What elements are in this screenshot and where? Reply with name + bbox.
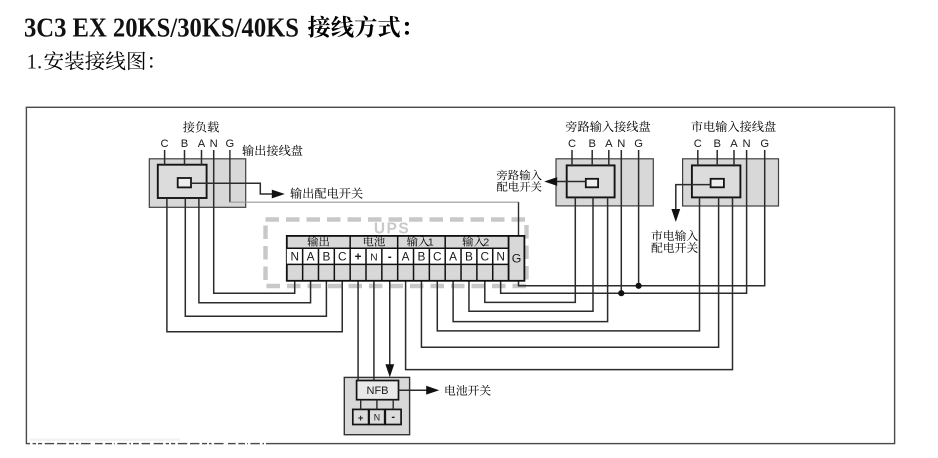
svg-text:C: C [568,138,576,150]
svg-text:N: N [496,250,505,264]
svg-text:A: A [730,138,738,150]
svg-text:N: N [743,138,751,150]
svg-text:A: A [307,250,315,264]
svg-text:G: G [512,252,522,266]
svg-text:UPS: UPS [374,221,410,238]
svg-text:B: B [181,138,188,150]
svg-text:-: - [388,250,392,264]
svg-text:A: A [605,138,613,150]
svg-text:B: B [465,250,473,264]
svg-text:A: A [402,250,410,264]
svg-text:B: B [418,250,426,264]
svg-text:N: N [290,250,299,264]
svg-text:C: C [481,250,490,264]
svg-text:B: B [588,138,595,150]
svg-text:2: 2 [483,237,489,249]
svg-text:1.: 1. [27,50,43,74]
svg-text:NFB: NFB [367,385,389,397]
svg-text:C: C [433,250,442,264]
svg-text:N: N [374,413,380,423]
svg-text:G: G [634,138,643,150]
svg-text:+: + [358,413,364,424]
svg-text:-: - [391,411,395,423]
svg-text:G: G [226,138,235,150]
svg-text:N: N [210,138,218,150]
svg-text:A: A [449,250,457,264]
svg-text:C: C [694,138,702,150]
svg-text:N: N [617,138,625,150]
svg-text:B: B [322,250,330,264]
svg-text:C: C [161,138,169,150]
svg-text:1: 1 [428,237,434,249]
svg-text:+: + [355,250,362,264]
svg-text:B: B [713,138,720,150]
svg-text:C: C [338,250,347,264]
svg-text:3C3 EX 20KS/30KS/40KS: 3C3 EX 20KS/30KS/40KS [24,12,299,43]
svg-text:G: G [760,138,769,150]
svg-text:N: N [370,253,377,264]
svg-text:A: A [198,138,206,150]
